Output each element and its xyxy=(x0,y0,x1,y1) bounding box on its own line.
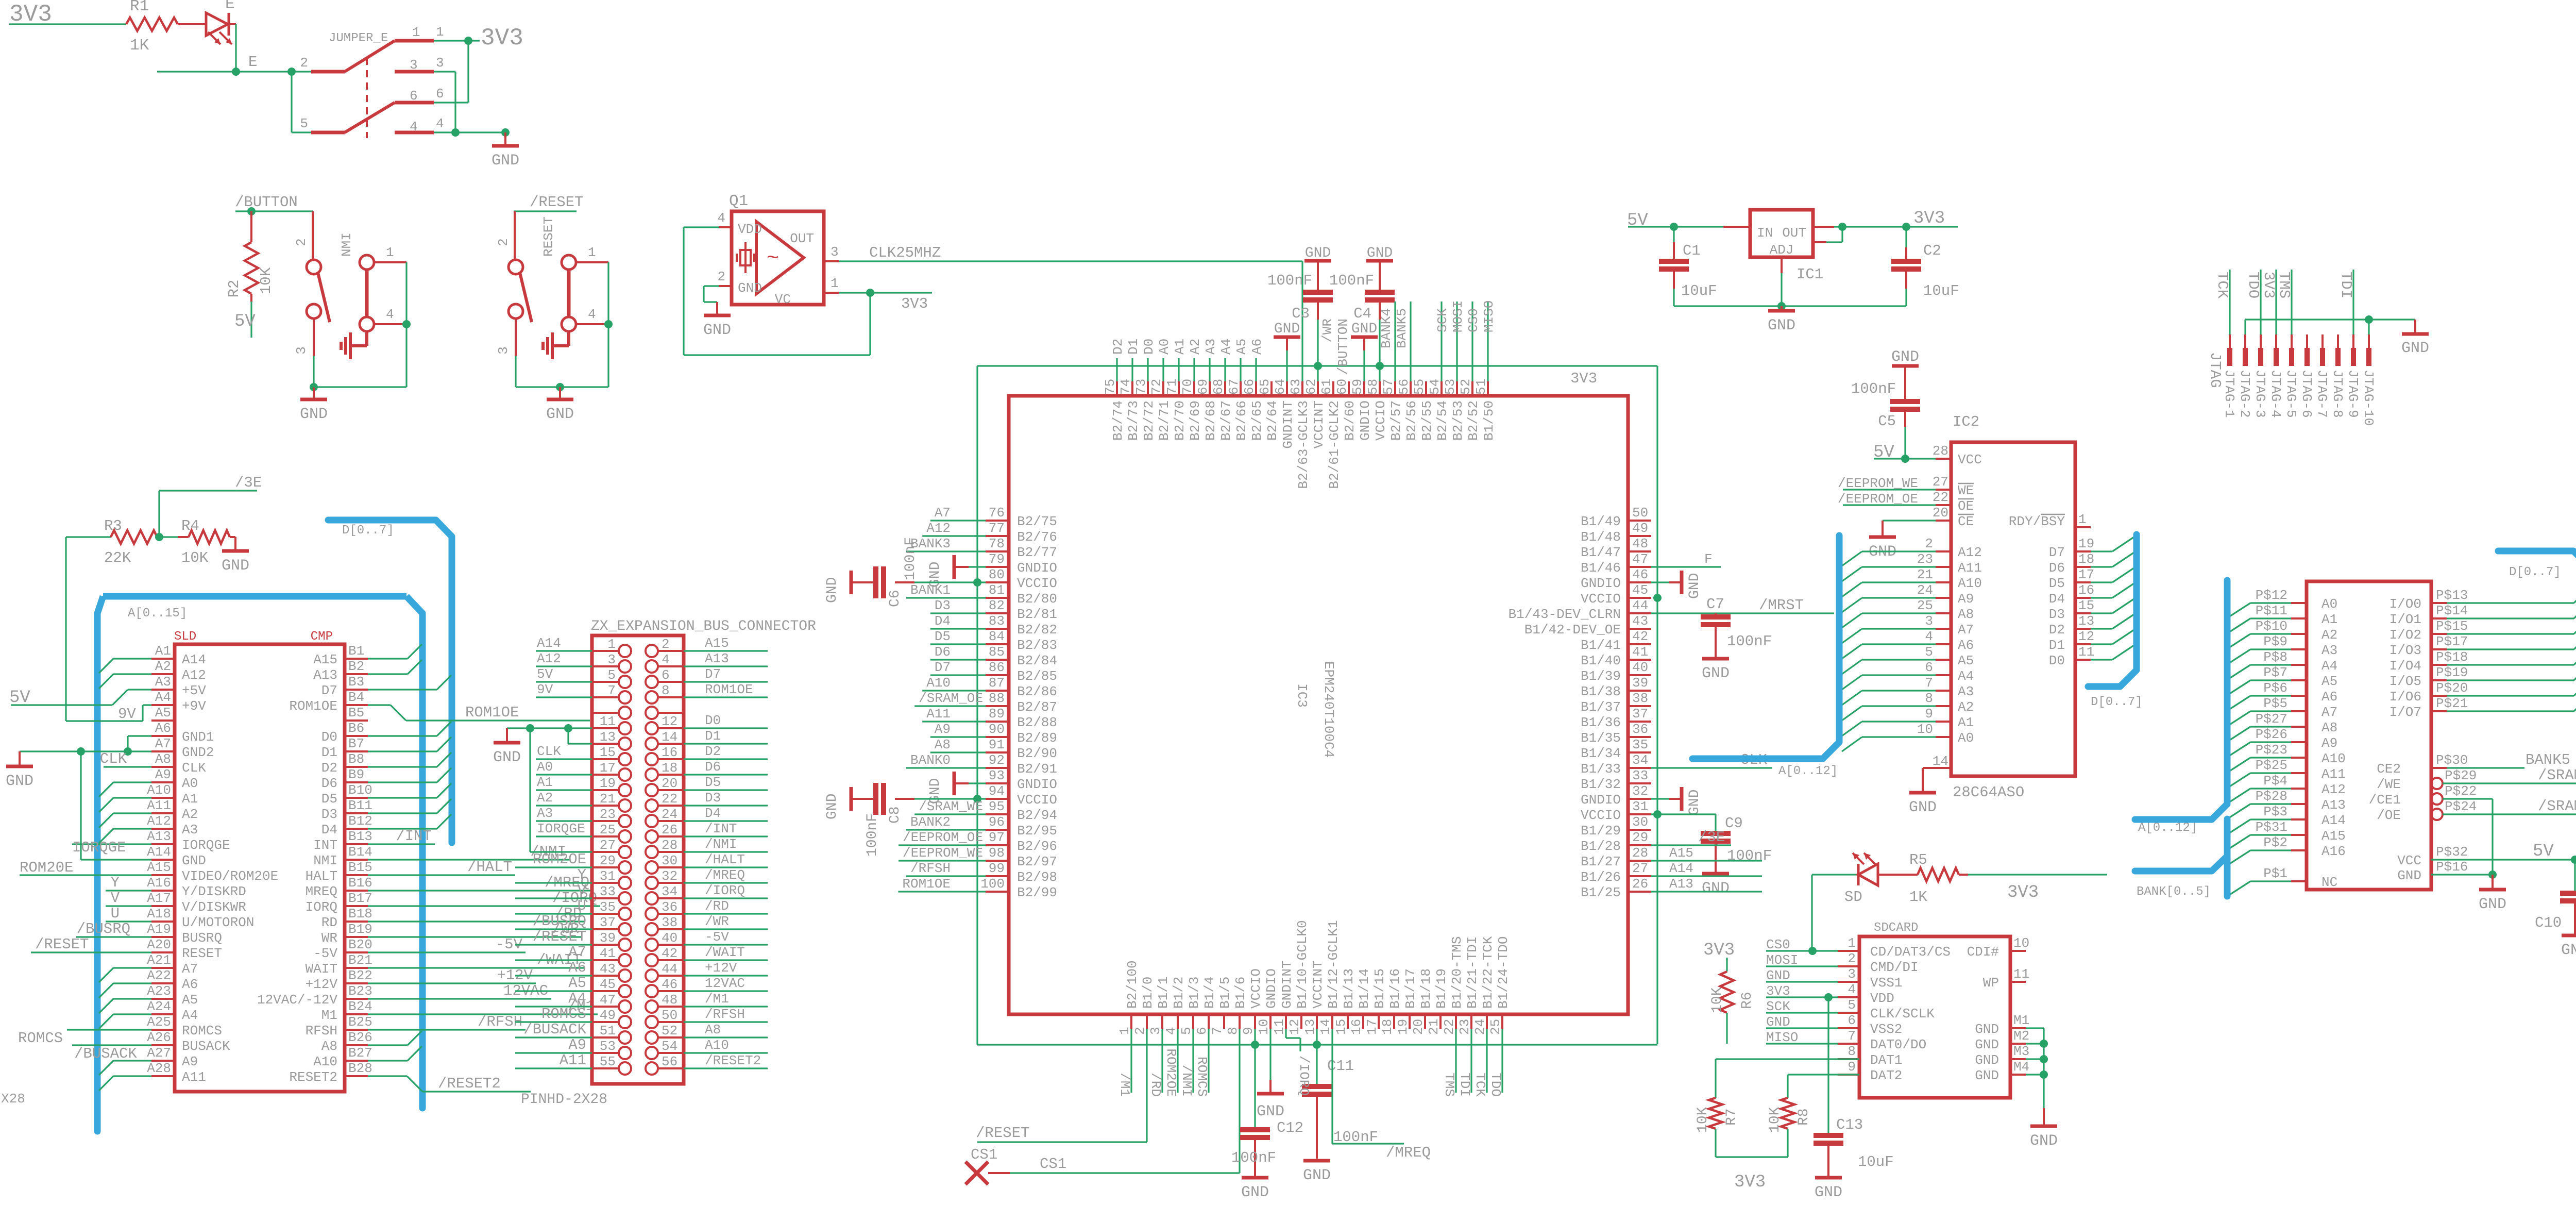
svg-text:28: 28 xyxy=(662,838,677,853)
svg-text:B6: B6 xyxy=(348,721,364,736)
svg-text:A8: A8 xyxy=(2321,720,2337,735)
svg-text:GND: GND xyxy=(1241,1184,1269,1201)
svg-text:50: 50 xyxy=(662,1008,677,1023)
svg-text:65: 65 xyxy=(1257,379,1273,395)
svg-text:19: 19 xyxy=(600,776,616,791)
svg-text:PINHD-2X28: PINHD-2X28 xyxy=(521,1092,607,1108)
svg-text:1K: 1K xyxy=(1909,889,1927,906)
svg-text:1: 1 xyxy=(607,637,616,652)
svg-text:P$5: P$5 xyxy=(2263,696,2287,711)
svg-text:A2: A2 xyxy=(537,790,553,806)
svg-text:CD/DAT3/CS: CD/DAT3/CS xyxy=(1870,944,1951,960)
svg-text:B26: B26 xyxy=(348,1030,372,1045)
svg-text:R7: R7 xyxy=(1724,1108,1740,1126)
svg-text:GND: GND xyxy=(1303,1167,1331,1184)
svg-text:21: 21 xyxy=(1426,1019,1442,1035)
svg-text:A3: A3 xyxy=(155,674,171,690)
svg-text:9V: 9V xyxy=(537,682,553,697)
svg-text:A2: A2 xyxy=(1958,699,1974,715)
svg-text:ROM1OE: ROM1OE xyxy=(465,704,519,721)
svg-text:JTAG-10: JTAG-10 xyxy=(2361,370,2376,426)
svg-text:B2/67: B2/67 xyxy=(1218,400,1234,441)
svg-text:D3: D3 xyxy=(705,790,721,806)
svg-text:4: 4 xyxy=(386,307,394,322)
svg-text:64: 64 xyxy=(1273,379,1288,395)
svg-text:RDY/BSY: RDY/BSY xyxy=(2009,514,2065,529)
svg-text:3: 3 xyxy=(294,346,309,355)
svg-text:ROM1OE: ROM1OE xyxy=(902,876,951,892)
svg-text:/RESET: /RESET xyxy=(533,928,586,945)
svg-text:GND: GND xyxy=(1975,1022,1999,1037)
svg-text:B10: B10 xyxy=(348,782,372,798)
svg-text:D2: D2 xyxy=(2049,622,2065,638)
svg-text:A6: A6 xyxy=(2321,689,2337,705)
svg-text:3V3: 3V3 xyxy=(2007,883,2039,902)
svg-text:V/DISKWR: V/DISKWR xyxy=(182,899,246,915)
svg-text:TMS: TMS xyxy=(2276,272,2293,298)
svg-text:/BUTTON: /BUTTON xyxy=(235,194,298,211)
svg-text:27: 27 xyxy=(600,838,616,853)
svg-text:MREQ: MREQ xyxy=(306,884,337,899)
svg-text:B2/57: B2/57 xyxy=(1388,400,1404,441)
svg-text:OUT: OUT xyxy=(1782,225,1806,241)
svg-text:A9: A9 xyxy=(155,767,171,782)
svg-text:52: 52 xyxy=(662,1023,677,1039)
svg-text:7: 7 xyxy=(1210,1027,1225,1035)
svg-text:D[0..7]: D[0..7] xyxy=(2509,565,2561,579)
svg-text:GND: GND xyxy=(493,749,521,766)
svg-text:12VAC/-12V: 12VAC/-12V xyxy=(257,992,337,1008)
svg-text:/EEPROM_OE: /EEPROM_OE xyxy=(1838,491,1918,507)
svg-text:96: 96 xyxy=(989,814,1005,830)
svg-text:4: 4 xyxy=(662,652,670,667)
svg-text:R8: R8 xyxy=(1796,1108,1812,1126)
svg-text:RESET: RESET xyxy=(541,216,556,257)
svg-text:2: 2 xyxy=(496,238,511,246)
svg-text:GND: GND xyxy=(1909,799,1937,816)
svg-text:P$19: P$19 xyxy=(2436,665,2468,680)
svg-text:B2/68: B2/68 xyxy=(1203,400,1218,441)
svg-text:MOSI: MOSI xyxy=(1450,300,1466,332)
svg-text:1: 1 xyxy=(436,24,444,40)
svg-text:52: 52 xyxy=(1458,379,1473,395)
svg-text:GNDIO: GNDIO xyxy=(1581,792,1621,808)
svg-text:3V3: 3V3 xyxy=(1734,1173,1766,1192)
svg-text:CLK: CLK xyxy=(100,750,127,767)
svg-text:B1/0: B1/0 xyxy=(1140,977,1156,1009)
svg-text:A[0..15]: A[0..15] xyxy=(128,607,187,621)
svg-text:A23: A23 xyxy=(147,983,171,999)
svg-text:A4: A4 xyxy=(182,1008,198,1023)
svg-text:U: U xyxy=(578,897,586,914)
svg-text:C4: C4 xyxy=(1353,305,1371,322)
svg-text:CS1: CS1 xyxy=(1040,1156,1066,1173)
svg-text:B1/25: B1/25 xyxy=(1581,885,1621,900)
svg-text:RESET: RESET xyxy=(182,946,222,961)
svg-text:C7: C7 xyxy=(1706,596,1724,613)
svg-text:GNDIO: GNDIO xyxy=(1358,400,1373,441)
svg-text:TDI: TDI xyxy=(1457,1073,1472,1097)
svg-text:GND: GND xyxy=(492,152,519,170)
svg-text:ROMCS: ROMCS xyxy=(18,1030,63,1047)
svg-text:15: 15 xyxy=(2078,598,2094,613)
svg-text:/BUSACK: /BUSACK xyxy=(74,1045,137,1062)
svg-text:A12: A12 xyxy=(2321,782,2346,797)
svg-text:D3: D3 xyxy=(321,807,337,822)
svg-text:DAT2: DAT2 xyxy=(1870,1068,1902,1083)
svg-text:GND: GND xyxy=(1975,1052,1999,1068)
svg-text:D[0..7]: D[0..7] xyxy=(2091,695,2143,709)
svg-text:68: 68 xyxy=(1211,379,1226,395)
svg-text:GND: GND xyxy=(738,280,762,296)
svg-text:GND: GND xyxy=(2479,896,2506,913)
svg-text:ROM2OE: ROM2OE xyxy=(1163,1048,1179,1097)
svg-text:VCCIO: VCCIO xyxy=(1017,576,1057,591)
svg-text:48: 48 xyxy=(1632,536,1648,551)
svg-text:2: 2 xyxy=(1848,951,1856,966)
svg-text:B9: B9 xyxy=(348,767,364,782)
svg-text:9: 9 xyxy=(1241,1027,1256,1035)
svg-text:B21: B21 xyxy=(348,952,372,968)
svg-text:3: 3 xyxy=(1148,1027,1163,1035)
svg-text:69: 69 xyxy=(1195,379,1211,395)
svg-text:32: 32 xyxy=(662,868,677,884)
svg-text:R3: R3 xyxy=(104,517,122,534)
svg-text:A11: A11 xyxy=(182,1069,206,1085)
svg-text:38: 38 xyxy=(1632,691,1648,706)
svg-text:1: 1 xyxy=(1848,935,1856,951)
svg-text:MISO: MISO xyxy=(1766,1030,1798,1045)
svg-text:GNDIO: GNDIO xyxy=(1581,576,1621,591)
svg-text:/RESET2: /RESET2 xyxy=(705,1053,761,1068)
svg-text:B18: B18 xyxy=(348,906,372,922)
svg-text:48: 48 xyxy=(662,992,677,1008)
svg-text:B17: B17 xyxy=(348,891,372,906)
svg-text:M1: M1 xyxy=(321,1008,337,1023)
svg-text:DAT1: DAT1 xyxy=(1870,1052,1902,1068)
svg-text:A11: A11 xyxy=(926,706,951,722)
svg-text:/EEPROM_WE: /EEPROM_WE xyxy=(903,845,983,861)
svg-text:/NMI: /NMI xyxy=(1179,1065,1194,1097)
svg-text:B2/100: B2/100 xyxy=(1125,960,1140,1009)
svg-text:3: 3 xyxy=(410,57,418,73)
svg-text:A7: A7 xyxy=(2321,705,2337,720)
svg-text:BUSACK: BUSACK xyxy=(182,1039,230,1054)
svg-text:/INT: /INT xyxy=(396,828,432,845)
svg-text:B2/88: B2/88 xyxy=(1017,715,1057,730)
svg-text:B1/28: B1/28 xyxy=(1581,839,1621,854)
svg-text:CMD/DI: CMD/DI xyxy=(1870,960,1919,975)
svg-text:I/O7: I/O7 xyxy=(2389,705,2421,720)
svg-text:54: 54 xyxy=(1427,379,1443,395)
svg-text:4: 4 xyxy=(588,307,596,322)
svg-text:A5: A5 xyxy=(182,992,198,1008)
svg-text:/INT: /INT xyxy=(705,821,737,836)
svg-text:49: 49 xyxy=(1632,521,1648,536)
svg-text:RESET2: RESET2 xyxy=(289,1069,337,1085)
svg-text:SDCARD: SDCARD xyxy=(1874,921,1918,935)
svg-text:A14: A14 xyxy=(537,635,561,651)
svg-text:/BUSRQ: /BUSRQ xyxy=(533,913,586,930)
svg-text:A7: A7 xyxy=(155,736,171,751)
svg-text:10uF: 10uF xyxy=(1681,282,1717,299)
svg-text:A8: A8 xyxy=(155,751,171,767)
svg-text:46: 46 xyxy=(1632,567,1648,582)
svg-text:5V: 5V xyxy=(234,312,256,331)
svg-text:GND: GND xyxy=(222,557,249,575)
svg-text:A25: A25 xyxy=(147,1014,171,1030)
svg-text:A12: A12 xyxy=(1958,545,1982,560)
svg-text:B19: B19 xyxy=(348,922,372,937)
svg-text:B2/99: B2/99 xyxy=(1017,885,1057,900)
svg-text:50: 50 xyxy=(1632,505,1648,521)
svg-text:56: 56 xyxy=(1396,379,1412,395)
svg-text:36: 36 xyxy=(662,899,677,915)
svg-text:C8: C8 xyxy=(887,806,903,824)
svg-text:B2/81: B2/81 xyxy=(1017,607,1057,622)
svg-text:B2/95: B2/95 xyxy=(1017,823,1057,839)
svg-text:I/O1: I/O1 xyxy=(2389,612,2421,627)
svg-text:3: 3 xyxy=(607,652,616,667)
svg-text:B1/27: B1/27 xyxy=(1581,854,1621,869)
svg-text:B25: B25 xyxy=(348,1014,372,1030)
svg-text:B1/37: B1/37 xyxy=(1581,699,1621,715)
svg-text:D1: D1 xyxy=(2049,638,2065,653)
svg-text:A6: A6 xyxy=(182,977,198,992)
svg-text:/BUSRQ: /BUSRQ xyxy=(77,921,130,938)
svg-text:/M1: /M1 xyxy=(1117,1073,1132,1097)
svg-text:M3: M3 xyxy=(2013,1044,2029,1059)
svg-text:23: 23 xyxy=(600,807,616,822)
svg-text:B1/16: B1/16 xyxy=(1387,968,1403,1009)
svg-text:GND: GND xyxy=(1351,321,1377,337)
svg-text:GND: GND xyxy=(1766,1014,1790,1030)
svg-text:D0: D0 xyxy=(705,713,721,728)
svg-text:P$16: P$16 xyxy=(2436,859,2468,875)
svg-text:27: 27 xyxy=(1933,474,1948,490)
svg-text:B2/80: B2/80 xyxy=(1017,591,1057,607)
svg-text:B24: B24 xyxy=(348,999,372,1014)
svg-text:A12: A12 xyxy=(537,651,561,666)
svg-text:20: 20 xyxy=(1933,505,1948,521)
svg-text:GNDIO: GNDIO xyxy=(1017,560,1057,576)
svg-text:B1/15: B1/15 xyxy=(1372,968,1387,1009)
svg-text:NMI: NMI xyxy=(313,853,337,868)
svg-text:55: 55 xyxy=(1412,379,1427,395)
svg-text:M1: M1 xyxy=(2013,1013,2029,1028)
svg-text:A6: A6 xyxy=(1958,638,1974,653)
svg-text:A1: A1 xyxy=(1958,715,1974,730)
svg-text:28C64ASO: 28C64ASO xyxy=(1953,784,2024,801)
svg-text:WP: WP xyxy=(1983,975,1999,991)
svg-text:GND: GND xyxy=(2401,340,2429,357)
svg-text:IC2: IC2 xyxy=(1953,413,1979,430)
svg-text:B2/86: B2/86 xyxy=(1017,684,1057,699)
svg-text:B1/2: B1/2 xyxy=(1171,977,1187,1009)
svg-text:21: 21 xyxy=(600,791,616,807)
svg-text:B2/83: B2/83 xyxy=(1017,638,1057,653)
svg-text:B1/43-DEV_CLRN: B1/43-DEV_CLRN xyxy=(1509,607,1621,622)
svg-text:80: 80 xyxy=(989,567,1005,582)
svg-text:B2/60: B2/60 xyxy=(1342,400,1358,441)
svg-text:ROMCS: ROMCS xyxy=(182,1023,222,1039)
svg-text:CS1: CS1 xyxy=(971,1146,997,1163)
svg-text:35: 35 xyxy=(600,899,616,915)
svg-text:A10: A10 xyxy=(926,675,951,691)
svg-text:P$28: P$28 xyxy=(2256,789,2287,804)
svg-text:5V: 5V xyxy=(537,666,553,682)
svg-text:P$9: P$9 xyxy=(2263,634,2287,649)
svg-text:B15: B15 xyxy=(348,860,372,875)
svg-text:16: 16 xyxy=(1349,1019,1364,1035)
svg-text:M4: M4 xyxy=(2013,1059,2029,1075)
svg-text:ROMCS: ROMCS xyxy=(541,1006,586,1023)
svg-text:3: 3 xyxy=(436,55,444,71)
svg-text:A0: A0 xyxy=(182,776,198,791)
svg-text:I/O5: I/O5 xyxy=(2389,674,2421,689)
svg-text:66: 66 xyxy=(1242,379,1257,395)
svg-text:B1/24-TDO: B1/24-TDO xyxy=(1496,936,1511,1009)
svg-text:+12V: +12V xyxy=(306,977,338,992)
svg-text:B1/19: B1/19 xyxy=(1434,968,1449,1009)
svg-text:17: 17 xyxy=(600,760,616,776)
svg-text:3: 3 xyxy=(1925,613,1933,629)
svg-text:7: 7 xyxy=(1925,675,1933,691)
svg-text:D[0..7]: D[0..7] xyxy=(342,524,394,538)
svg-text:3: 3 xyxy=(496,346,511,355)
svg-text:INT: INT xyxy=(313,838,337,853)
svg-text:B1/36: B1/36 xyxy=(1581,715,1621,730)
svg-text:B5: B5 xyxy=(348,705,364,721)
svg-text:A0: A0 xyxy=(1958,730,1974,746)
svg-text:P$22: P$22 xyxy=(2445,783,2477,799)
svg-text:/BUSACK: /BUSACK xyxy=(523,1021,586,1038)
svg-text:JTAG-4: JTAG-4 xyxy=(2268,370,2283,418)
svg-text:TDI: TDI xyxy=(2337,272,2354,298)
svg-text:RD: RD xyxy=(321,915,337,930)
svg-text:C9: C9 xyxy=(1725,815,1743,832)
svg-text:GND: GND xyxy=(2561,942,2576,959)
svg-text:P$29: P$29 xyxy=(2445,768,2477,783)
svg-text:GND: GND xyxy=(1815,1184,1842,1201)
svg-text:JTAG-1: JTAG-1 xyxy=(2222,370,2237,418)
svg-text:GNDINT: GNDINT xyxy=(1280,400,1296,449)
svg-text:24: 24 xyxy=(1472,1019,1488,1035)
svg-text:MOSI: MOSI xyxy=(1766,952,1798,968)
svg-text:95: 95 xyxy=(989,799,1005,814)
svg-text:/RESET: /RESET xyxy=(530,194,583,211)
svg-text:D6: D6 xyxy=(2049,560,2065,576)
svg-text:B1/21-TDI: B1/21-TDI xyxy=(1465,936,1480,1009)
svg-text:B16: B16 xyxy=(348,875,372,891)
svg-text:/WR: /WR xyxy=(1320,319,1335,343)
svg-text:A14: A14 xyxy=(1669,861,1693,876)
svg-text:D4: D4 xyxy=(2049,591,2065,607)
svg-text:5: 5 xyxy=(1925,644,1933,660)
svg-text:C13: C13 xyxy=(1836,1116,1863,1133)
svg-text:40: 40 xyxy=(1632,660,1648,675)
svg-text:D4: D4 xyxy=(705,806,721,821)
svg-text:B2/52: B2/52 xyxy=(1466,400,1481,441)
svg-text:10uF: 10uF xyxy=(1923,282,1959,299)
svg-text:P$12: P$12 xyxy=(2256,588,2287,603)
svg-text:24: 24 xyxy=(662,807,677,822)
svg-text:A10: A10 xyxy=(313,1054,337,1069)
svg-text:8: 8 xyxy=(1848,1044,1856,1059)
svg-text:5: 5 xyxy=(607,667,616,683)
svg-text:A4: A4 xyxy=(1218,339,1234,355)
svg-text:/HALT: /HALT xyxy=(467,859,512,876)
svg-text:B2/71: B2/71 xyxy=(1157,400,1172,441)
svg-text:CS0: CS0 xyxy=(1466,308,1481,332)
svg-text:GND: GND xyxy=(1687,573,1703,599)
svg-text:3V3: 3V3 xyxy=(1703,941,1735,960)
svg-text:2: 2 xyxy=(294,238,309,246)
svg-text:21: 21 xyxy=(1917,567,1933,582)
svg-text:GNDIO: GNDIO xyxy=(1017,777,1057,792)
svg-text:BANK0: BANK0 xyxy=(910,752,951,768)
svg-text:91: 91 xyxy=(989,737,1005,752)
svg-text:41: 41 xyxy=(1632,644,1648,660)
svg-text:97: 97 xyxy=(989,830,1005,845)
svg-text:28: 28 xyxy=(1933,443,1948,459)
svg-text:TDO: TDO xyxy=(2245,272,2262,298)
svg-text:P$3: P$3 xyxy=(2263,804,2287,819)
svg-text:/3E: /3E xyxy=(1698,829,1725,846)
svg-text:A27: A27 xyxy=(147,1045,171,1061)
svg-text:IORQGE: IORQGE xyxy=(182,838,230,853)
svg-text:GND: GND xyxy=(1702,880,1730,897)
svg-text:TMS: TMS xyxy=(1442,1073,1457,1097)
svg-text:A11: A11 xyxy=(147,798,171,813)
svg-text:40: 40 xyxy=(662,930,677,946)
svg-text:22K: 22K xyxy=(104,549,131,566)
svg-text:12VAC: 12VAC xyxy=(705,976,745,991)
svg-text:83: 83 xyxy=(989,613,1005,629)
svg-text:A0: A0 xyxy=(537,759,553,775)
svg-text:B2/72: B2/72 xyxy=(1141,400,1157,441)
svg-text:100nF: 100nF xyxy=(1231,1149,1276,1166)
svg-text:36: 36 xyxy=(1632,722,1648,737)
svg-text:92: 92 xyxy=(989,752,1005,768)
svg-text:D1: D1 xyxy=(705,728,721,744)
svg-text:/M1: /M1 xyxy=(705,991,729,1007)
svg-text:2: 2 xyxy=(662,637,670,652)
svg-text:VCC: VCC xyxy=(1958,452,1982,467)
svg-text:A15: A15 xyxy=(705,635,729,651)
svg-text:B2/76: B2/76 xyxy=(1017,529,1057,545)
svg-text:RFSH: RFSH xyxy=(306,1023,337,1039)
svg-text:11: 11 xyxy=(2078,644,2094,660)
svg-text:A8: A8 xyxy=(1958,607,1974,622)
svg-text:A2: A2 xyxy=(182,807,198,822)
svg-text:B1/32: B1/32 xyxy=(1581,777,1621,792)
svg-text:8: 8 xyxy=(1925,691,1933,706)
svg-text:B1/49: B1/49 xyxy=(1581,514,1621,529)
svg-text:B2/53: B2/53 xyxy=(1450,400,1466,441)
svg-text:A13: A13 xyxy=(705,651,729,666)
svg-text:JUMPER_E: JUMPER_E xyxy=(329,31,388,45)
svg-text:D6: D6 xyxy=(321,776,337,791)
svg-text:B2/87: B2/87 xyxy=(1017,699,1057,715)
svg-text:2: 2 xyxy=(300,55,308,71)
svg-text:GND1: GND1 xyxy=(182,729,214,745)
svg-text:5: 5 xyxy=(1179,1027,1194,1035)
svg-text:A16: A16 xyxy=(2321,844,2346,859)
svg-text:P$20: P$20 xyxy=(2436,680,2468,696)
svg-text:ROMCS: ROMCS xyxy=(1194,1057,1210,1097)
svg-text:B2/55: B2/55 xyxy=(1419,400,1435,441)
